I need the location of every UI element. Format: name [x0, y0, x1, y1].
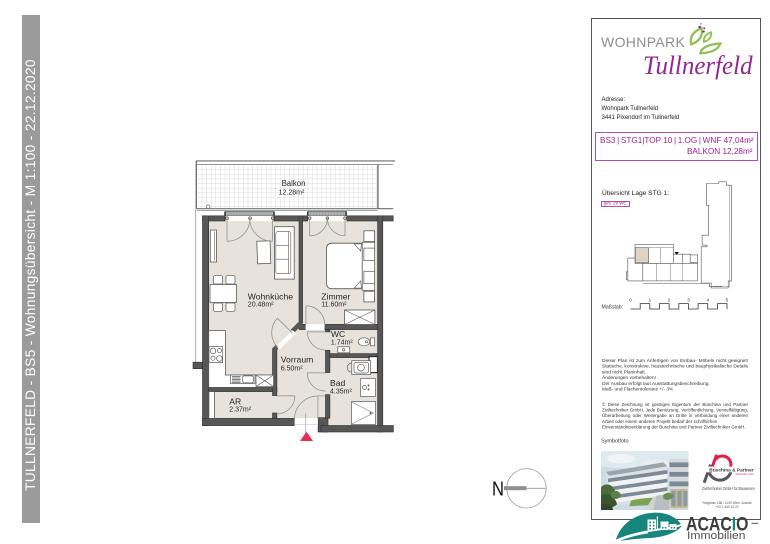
- svg-text:Vorraum: Vorraum: [281, 355, 313, 365]
- svg-text:20.48m²: 20.48m²: [248, 302, 274, 309]
- svg-text:3: 3: [687, 298, 690, 304]
- svg-text:6.50m²: 6.50m²: [281, 365, 303, 372]
- svg-text:Maßstab:: Maßstab:: [602, 305, 624, 311]
- svg-text:Zimmer: Zimmer: [321, 292, 350, 302]
- svg-text:Immobilien: Immobilien: [687, 530, 746, 542]
- svg-text:Bad: Bad: [330, 378, 346, 388]
- svg-text:12.28m²: 12.28m²: [279, 190, 305, 197]
- svg-text:4.35m²: 4.35m²: [330, 389, 352, 396]
- svg-text:11.60m²: 11.60m²: [321, 302, 347, 309]
- svg-text:WC: WC: [331, 329, 345, 339]
- svg-text:0: 0: [629, 298, 632, 304]
- svg-text:4: 4: [706, 298, 709, 304]
- svg-text:2.37m²: 2.37m²: [229, 407, 251, 414]
- svg-text:2: 2: [668, 298, 671, 304]
- svg-text:1.74m²: 1.74m²: [331, 339, 353, 346]
- svg-text:Wohnküche: Wohnküche: [248, 292, 293, 302]
- svg-text:5: 5: [726, 298, 729, 304]
- svg-text:Ziviltechniker GmbH: Ziviltechniker GmbH: [736, 472, 754, 476]
- svg-text:1: 1: [648, 298, 651, 304]
- svg-text:AR: AR: [229, 396, 241, 406]
- svg-text:Ziviltechniker GmbH für Bauwes: Ziviltechniker GmbH für Bauwesen: [702, 486, 755, 491]
- svg-text:N: N: [492, 479, 504, 501]
- svg-text:Balkon: Balkon: [282, 179, 306, 188]
